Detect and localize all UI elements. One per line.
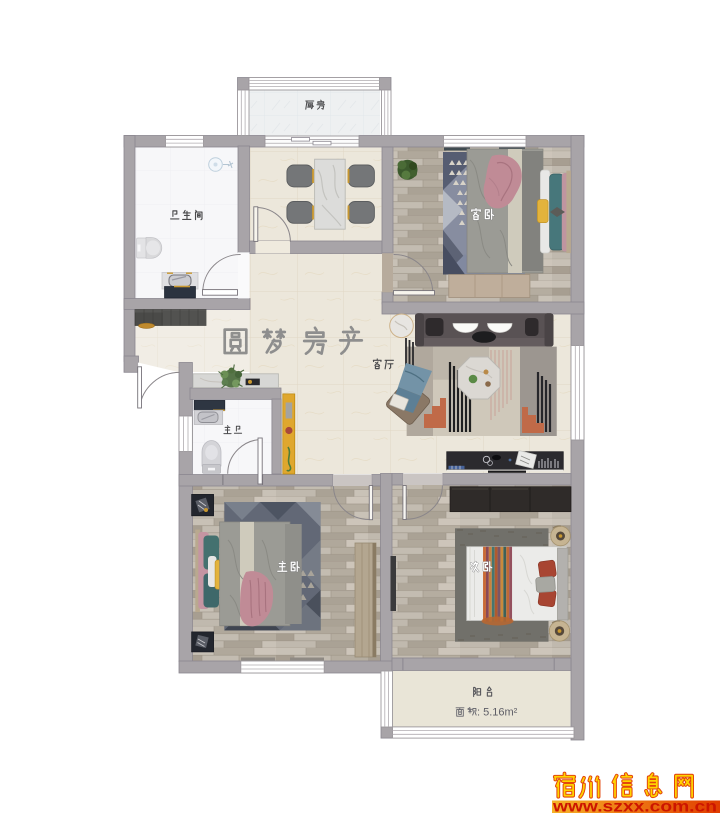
svg-text:www.szxx.com.cn: www.szxx.com.cn bbox=[552, 799, 717, 816]
svg-text:: 5.16m²: : 5.16m² bbox=[477, 707, 518, 719]
